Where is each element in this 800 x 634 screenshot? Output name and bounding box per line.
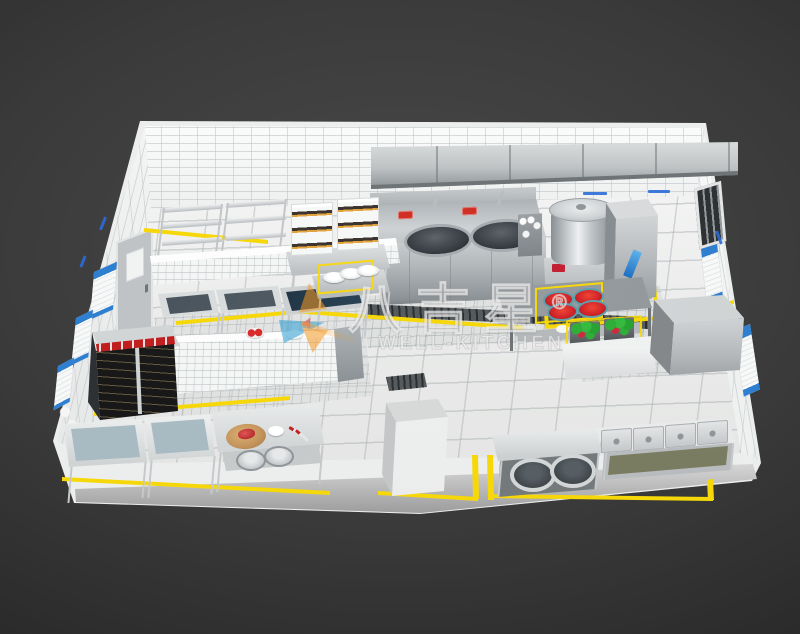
equipment-label bbox=[583, 192, 607, 195]
equipment-label bbox=[648, 190, 670, 193]
stockpot-control bbox=[552, 264, 565, 272]
kitchen-3d-render: 八吉星® WELL-KITCHEN bbox=[0, 0, 800, 634]
wok-control-panel bbox=[398, 211, 413, 220]
vent-window bbox=[694, 181, 726, 250]
door-window bbox=[126, 247, 144, 282]
tray-lid bbox=[665, 423, 696, 448]
stock-pot bbox=[236, 450, 266, 471]
stockpot-knob bbox=[576, 204, 586, 210]
table-leg bbox=[648, 308, 651, 338]
dimsum-steamer-stack bbox=[337, 197, 379, 251]
door-handle bbox=[145, 284, 148, 293]
dimsum-steamer-stack bbox=[291, 202, 333, 256]
wok-control-panel bbox=[462, 207, 477, 216]
stock-pot bbox=[264, 446, 294, 467]
spice-rack bbox=[518, 213, 542, 256]
round-pot bbox=[550, 454, 596, 488]
table-leg bbox=[510, 319, 513, 351]
white-plate bbox=[286, 330, 303, 339]
round-pot bbox=[510, 458, 556, 492]
tray-lid bbox=[601, 428, 632, 453]
tray-lid bbox=[697, 420, 728, 445]
mixing-bowl bbox=[268, 426, 284, 436]
tray-lid bbox=[633, 426, 664, 451]
tomato-plate bbox=[246, 328, 264, 338]
plate-stack bbox=[357, 265, 379, 276]
stockpot-lid bbox=[549, 198, 615, 222]
